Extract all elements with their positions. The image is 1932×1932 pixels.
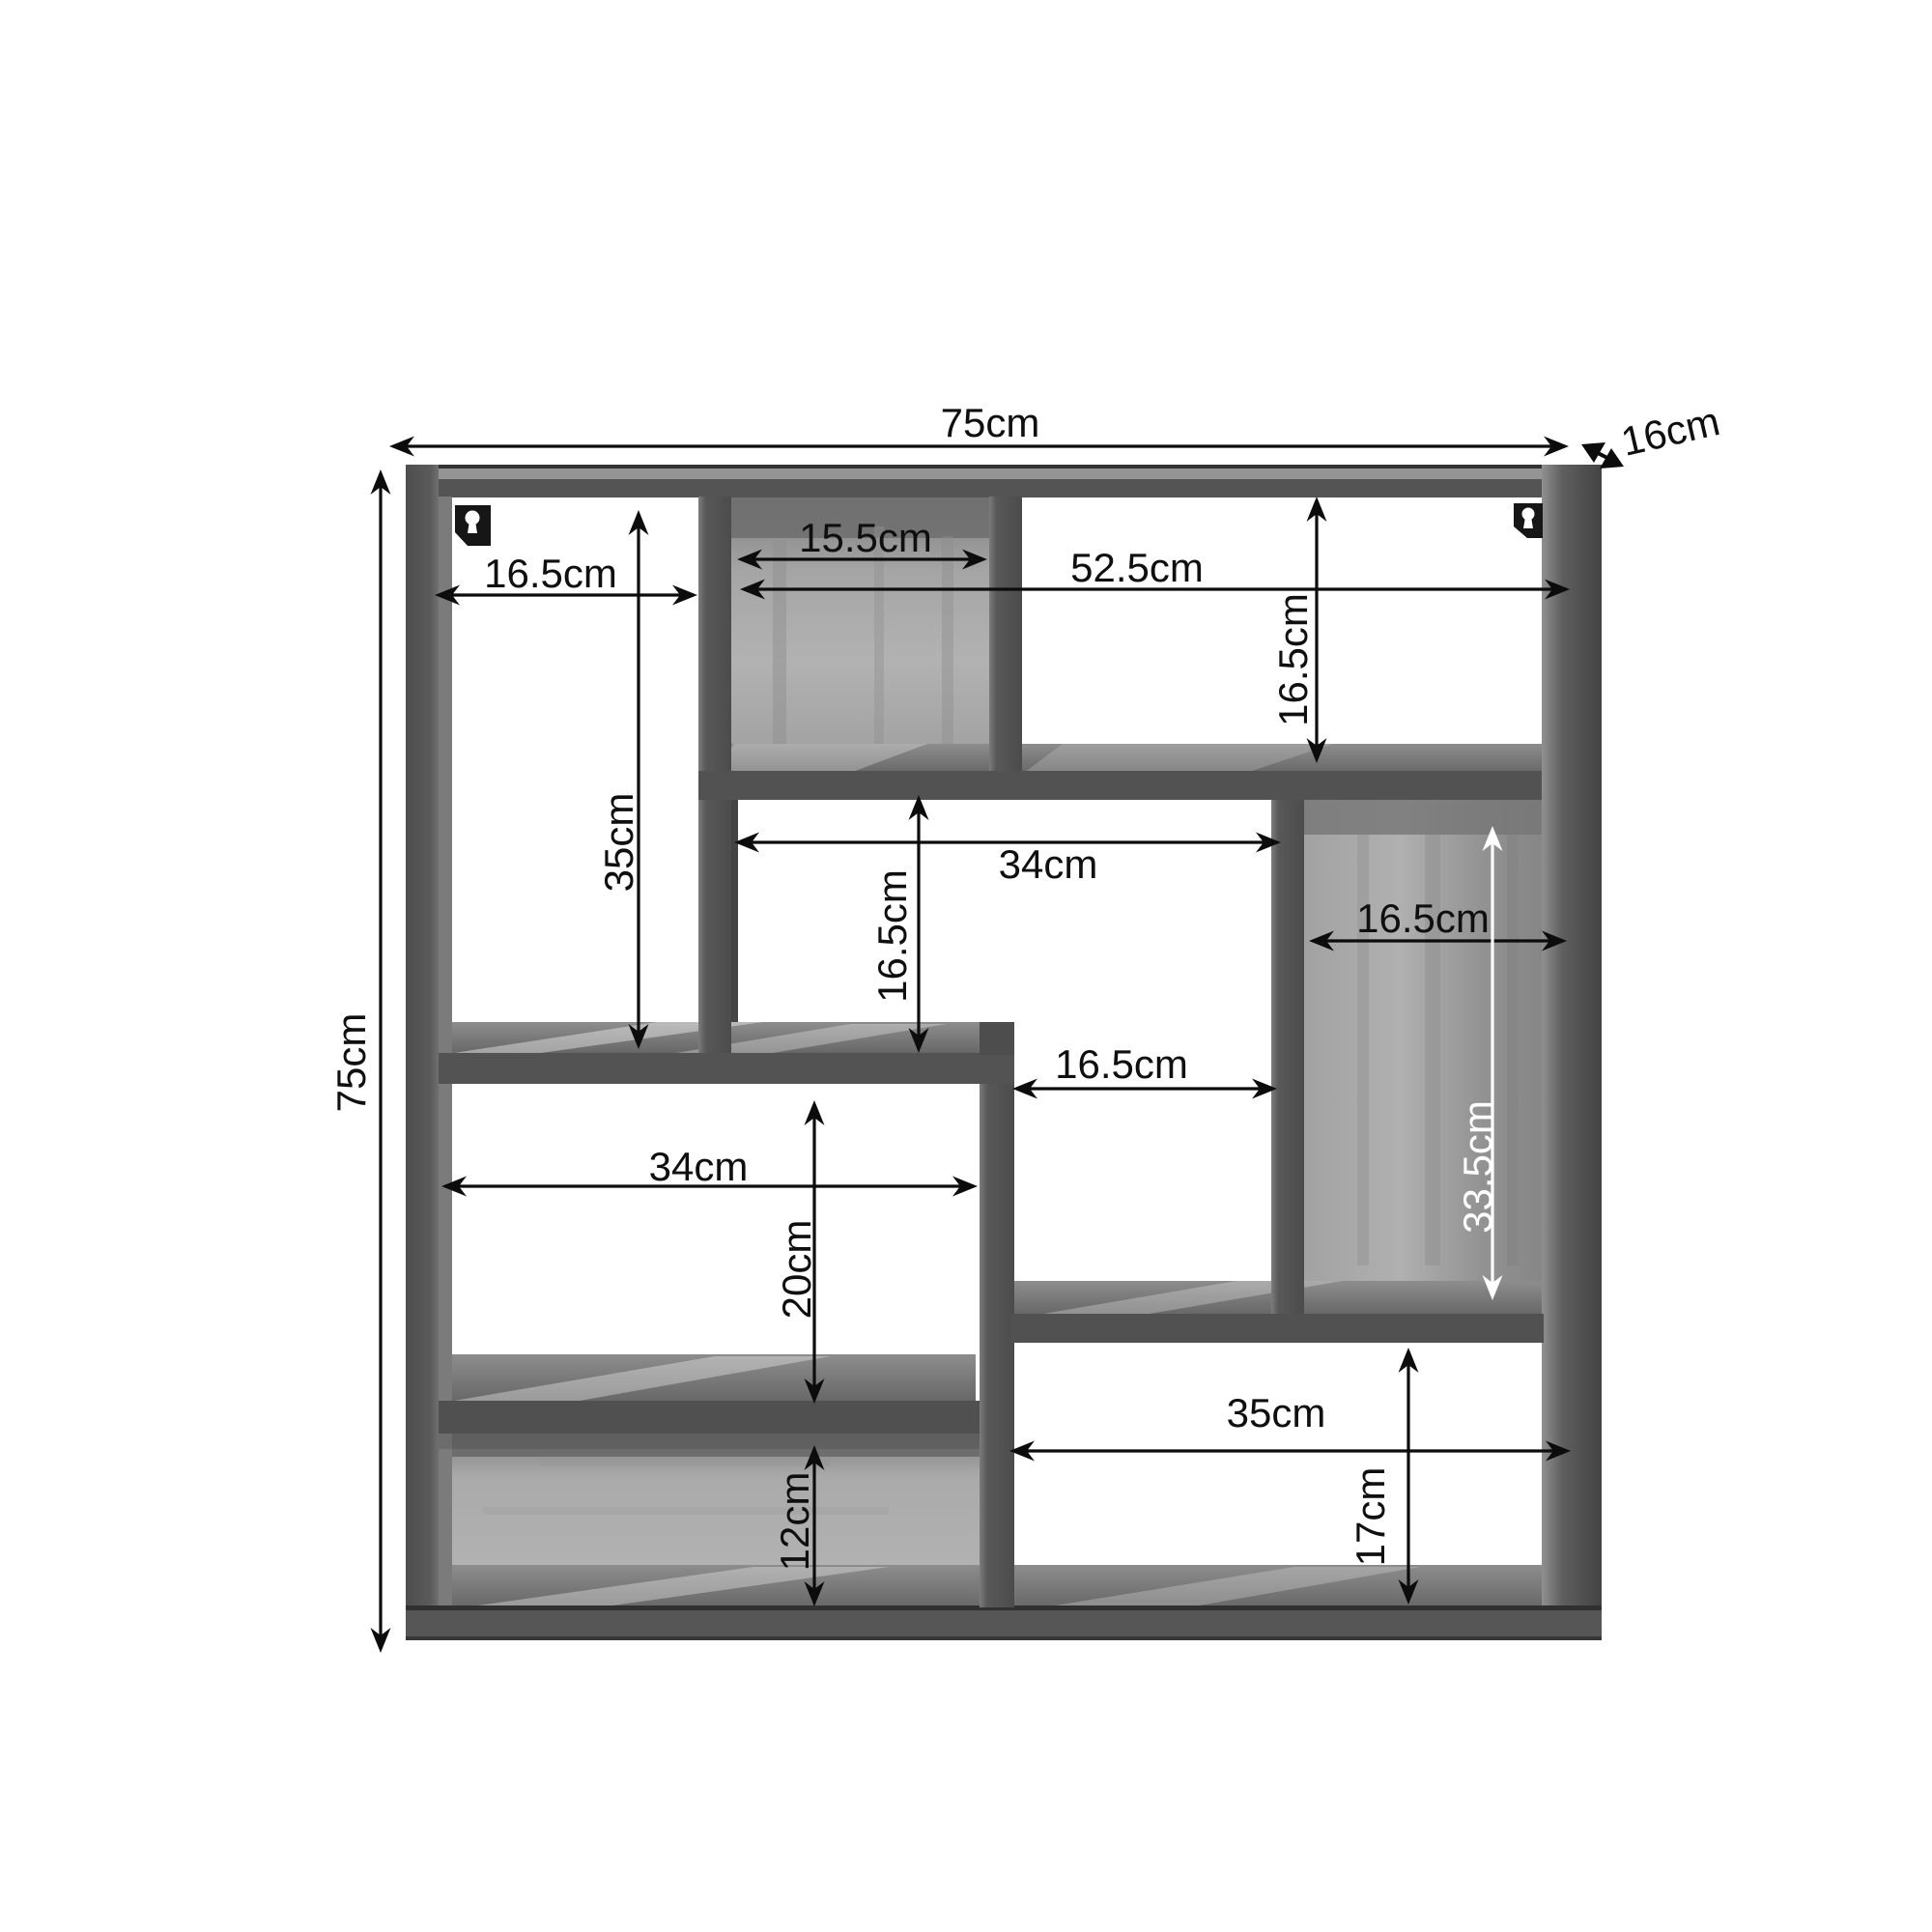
svg-text:16.5cm: 16.5cm [869, 869, 915, 1003]
svg-text:20cm: 20cm [774, 1220, 819, 1320]
svg-text:16.5cm: 16.5cm [1055, 1041, 1188, 1087]
svg-text:15.5cm: 15.5cm [799, 515, 932, 560]
svg-text:16.5cm: 16.5cm [484, 551, 617, 596]
svg-text:35cm: 35cm [1227, 1390, 1326, 1435]
svg-text:33.5cm: 33.5cm [1455, 1100, 1500, 1234]
svg-text:52.5cm: 52.5cm [1070, 545, 1204, 590]
svg-text:34cm: 34cm [649, 1144, 749, 1189]
svg-text:12cm: 12cm [772, 1472, 817, 1572]
svg-text:75cm: 75cm [941, 400, 1040, 445]
svg-text:34cm: 34cm [999, 841, 1098, 887]
svg-text:16.5cm: 16.5cm [1356, 895, 1490, 941]
svg-text:35cm: 35cm [596, 793, 641, 893]
svg-text:75cm: 75cm [328, 1013, 374, 1113]
svg-text:16.5cm: 16.5cm [1270, 593, 1316, 726]
svg-text:17cm: 17cm [1348, 1467, 1393, 1567]
